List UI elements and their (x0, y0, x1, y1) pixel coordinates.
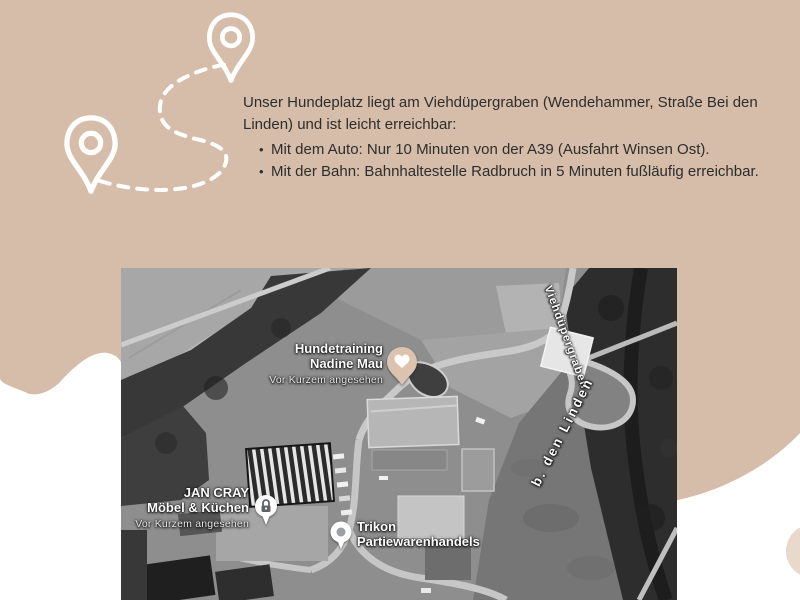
directions-bullet-bahn: Mit der Bahn: Bahnhaltestelle Radbruch i… (259, 161, 759, 183)
map-marker-jancray-label: JAN CRAY Möbel & Küchen Vor Kurzem anges… (125, 486, 249, 530)
accent-circle (786, 524, 800, 578)
directions-text: Unser Hundeplatz liegt am Viehdüpergrabe… (243, 92, 759, 183)
marker-status: Vor Kurzem angesehen (261, 374, 383, 386)
marker-title-line: Hundetraining (261, 342, 383, 357)
dot-pin-icon[interactable] (329, 521, 353, 551)
page: Unser Hundeplatz liegt am Viehdüpergrabe… (0, 0, 800, 600)
marker-title-line: Partiewarenhandels (357, 535, 477, 550)
directions-list: Mit dem Auto: Nur 10 Minuten von der A39… (243, 139, 759, 183)
satellite-map[interactable]: Hundetraining Nadine Mau Vor Kurzem ange… (121, 268, 677, 600)
marker-title-line: JAN CRAY (125, 486, 249, 501)
location-pin-icon (62, 115, 120, 196)
heart-pin-icon[interactable] (386, 346, 418, 386)
satellite-imagery (121, 268, 677, 600)
directions-bullet-auto: Mit dem Auto: Nur 10 Minuten von der A39… (259, 139, 759, 161)
map-marker-trikon-label: Trikon Partiewarenhandels (357, 520, 477, 550)
lock-pin-icon[interactable] (253, 494, 279, 528)
marker-title-line: Nadine Mau (261, 357, 383, 372)
location-pin-icon (205, 12, 257, 85)
marker-title-line: Möbel & Küchen (125, 501, 249, 516)
marker-title-line: Trikon (357, 520, 477, 535)
directions-paragraph: Unser Hundeplatz liegt am Viehdüpergrabe… (243, 92, 759, 136)
marker-status: Vor Kurzem angesehen (125, 518, 249, 530)
map-marker-hundetraining-label: Hundetraining Nadine Mau Vor Kurzem ange… (261, 342, 383, 386)
